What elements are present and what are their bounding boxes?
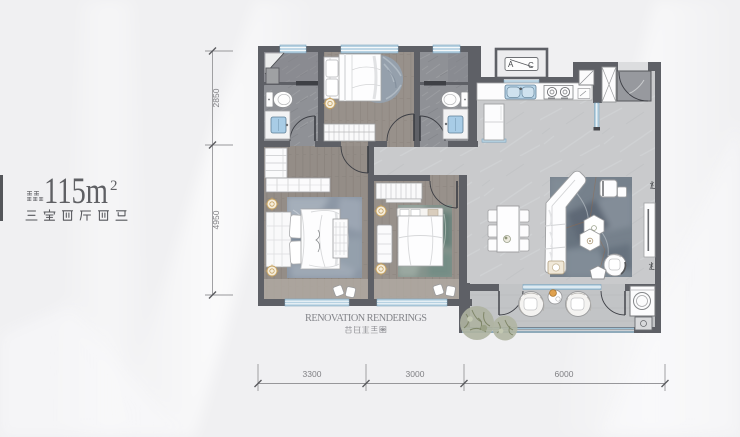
svg-text:6000: 6000 bbox=[555, 369, 574, 379]
svg-text:RENOVATION RENDERINGS: RENOVATION RENDERINGS bbox=[305, 313, 427, 324]
svg-text:2850: 2850 bbox=[211, 88, 221, 107]
svg-text:4950: 4950 bbox=[211, 210, 221, 229]
svg-text:2: 2 bbox=[110, 178, 118, 194]
svg-text:3000: 3000 bbox=[406, 369, 425, 379]
svg-text:3300: 3300 bbox=[303, 369, 322, 379]
svg-text:A: A bbox=[508, 60, 514, 69]
svg-text:115m: 115m bbox=[44, 171, 108, 212]
